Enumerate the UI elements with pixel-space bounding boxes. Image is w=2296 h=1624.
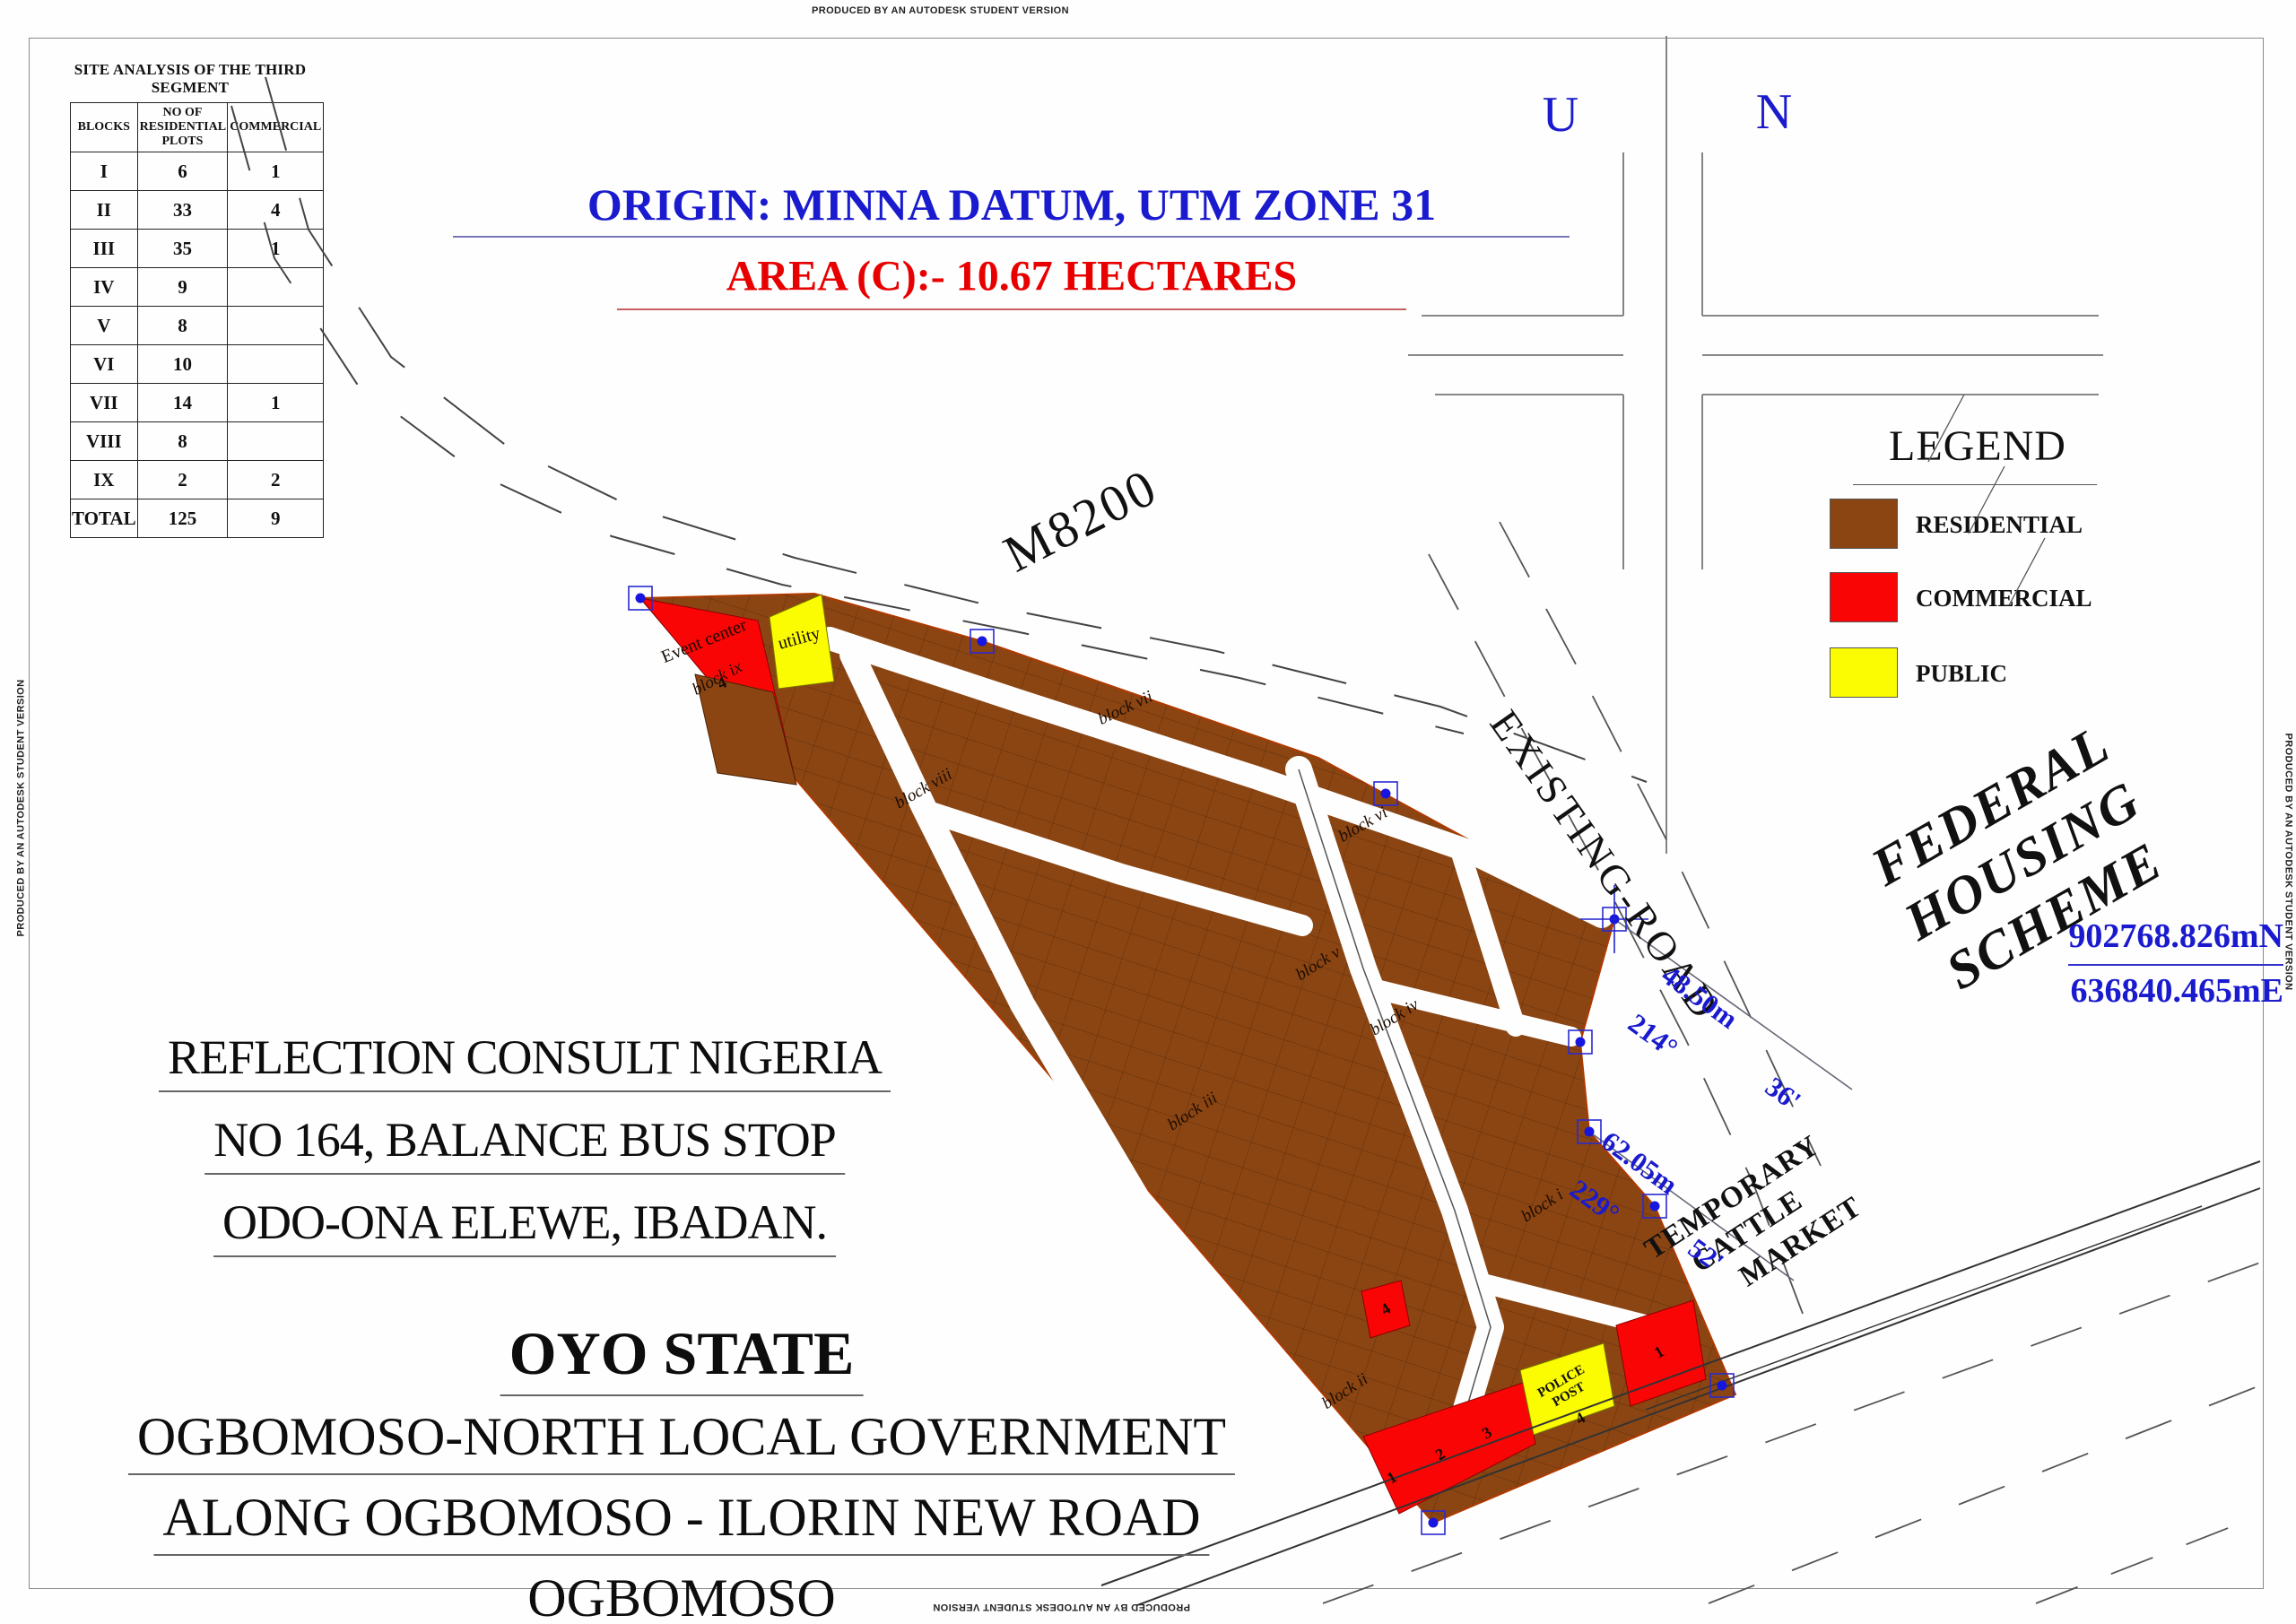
location-line-2: ALONG OGBOMOSO - ILORIN NEW ROAD	[153, 1487, 1209, 1556]
consultant-line-2: NO 164, BALANCE BUS STOP	[204, 1112, 845, 1175]
consultant-line-3: ODO-ONA ELEWE, IBADAN.	[213, 1194, 836, 1257]
location-state: OYO STATE	[500, 1318, 864, 1396]
location-line-1: OGBOMOSO-NORTH LOCAL GOVERNMENT	[128, 1406, 1235, 1475]
location-line-3: OGBOMOSO	[518, 1568, 844, 1624]
survey-coordinates: 902768.826mN 636840.465mE	[2068, 911, 2283, 1017]
easting-value: 636840.465mE	[2068, 966, 2283, 1017]
survey-sheet: PRODUCED BY AN AUTODESK STUDENT VERSION …	[0, 0, 2296, 1624]
northing-value: 902768.826mN	[2068, 911, 2283, 966]
road-hatch-marks	[1928, 395, 2045, 605]
consultant-line-1: REFLECTION CONSULT NIGERIA	[159, 1029, 891, 1092]
